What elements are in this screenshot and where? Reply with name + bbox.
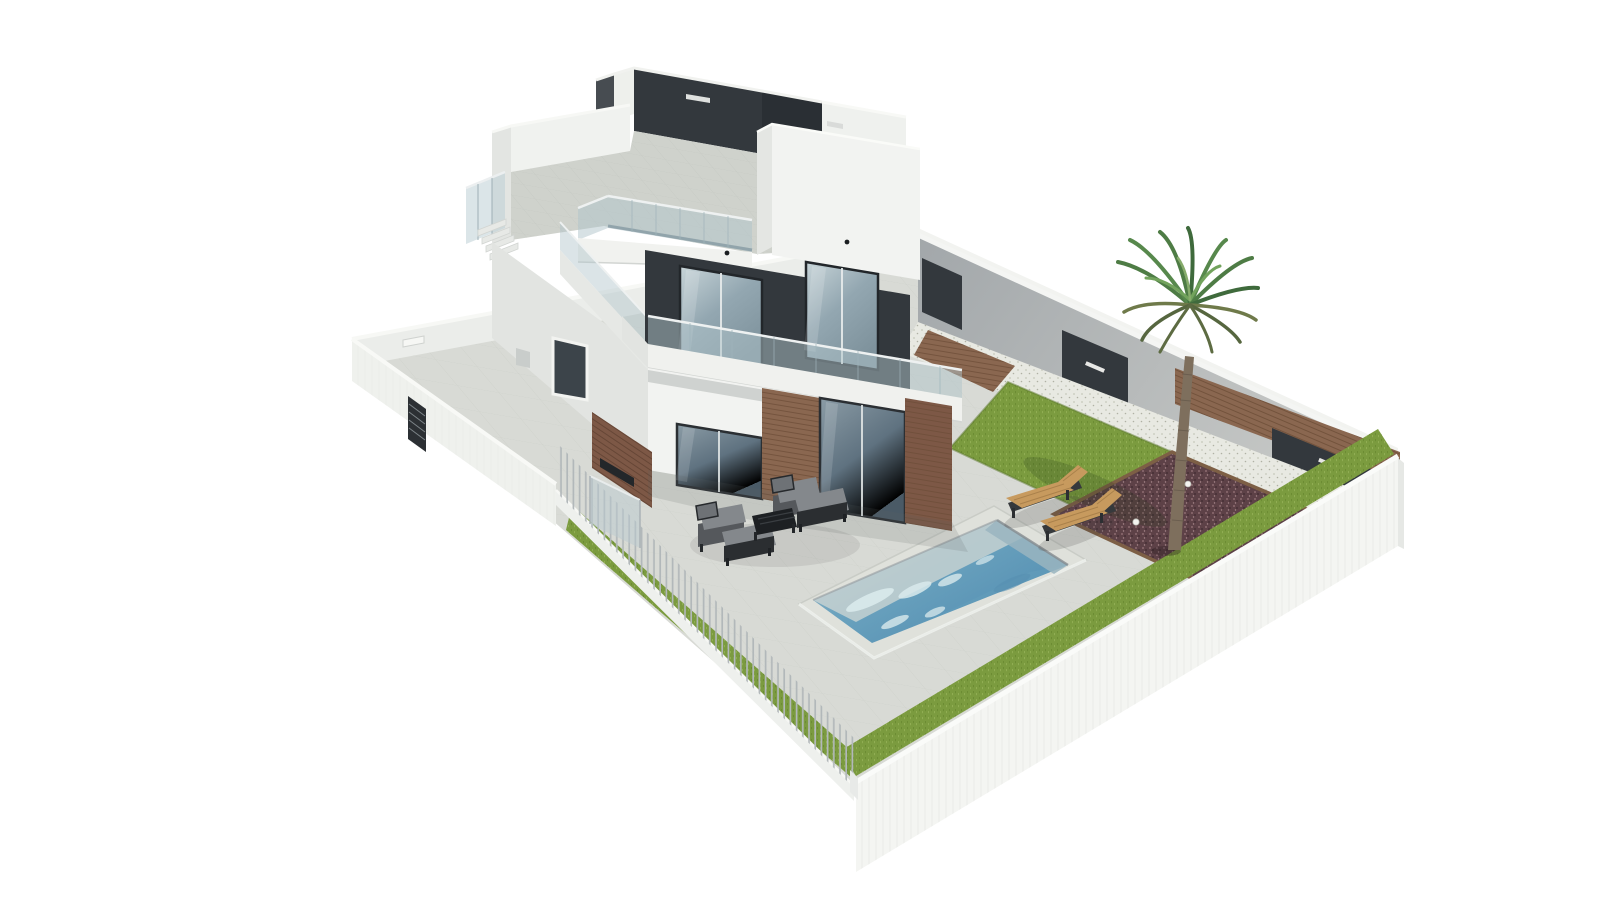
facade-downlight [845, 240, 850, 245]
garden-spotlight [1185, 481, 1191, 487]
garden-spotlight [1133, 519, 1139, 525]
facade-downlight [725, 251, 730, 256]
architectural-render: 3D architectural render — modern two-sto… [0, 0, 1600, 902]
brick-pillar [905, 398, 952, 531]
sw-window [553, 338, 587, 400]
roof-tower [757, 124, 920, 280]
render-canvas: 3D architectural render — modern two-sto… [0, 0, 1600, 902]
